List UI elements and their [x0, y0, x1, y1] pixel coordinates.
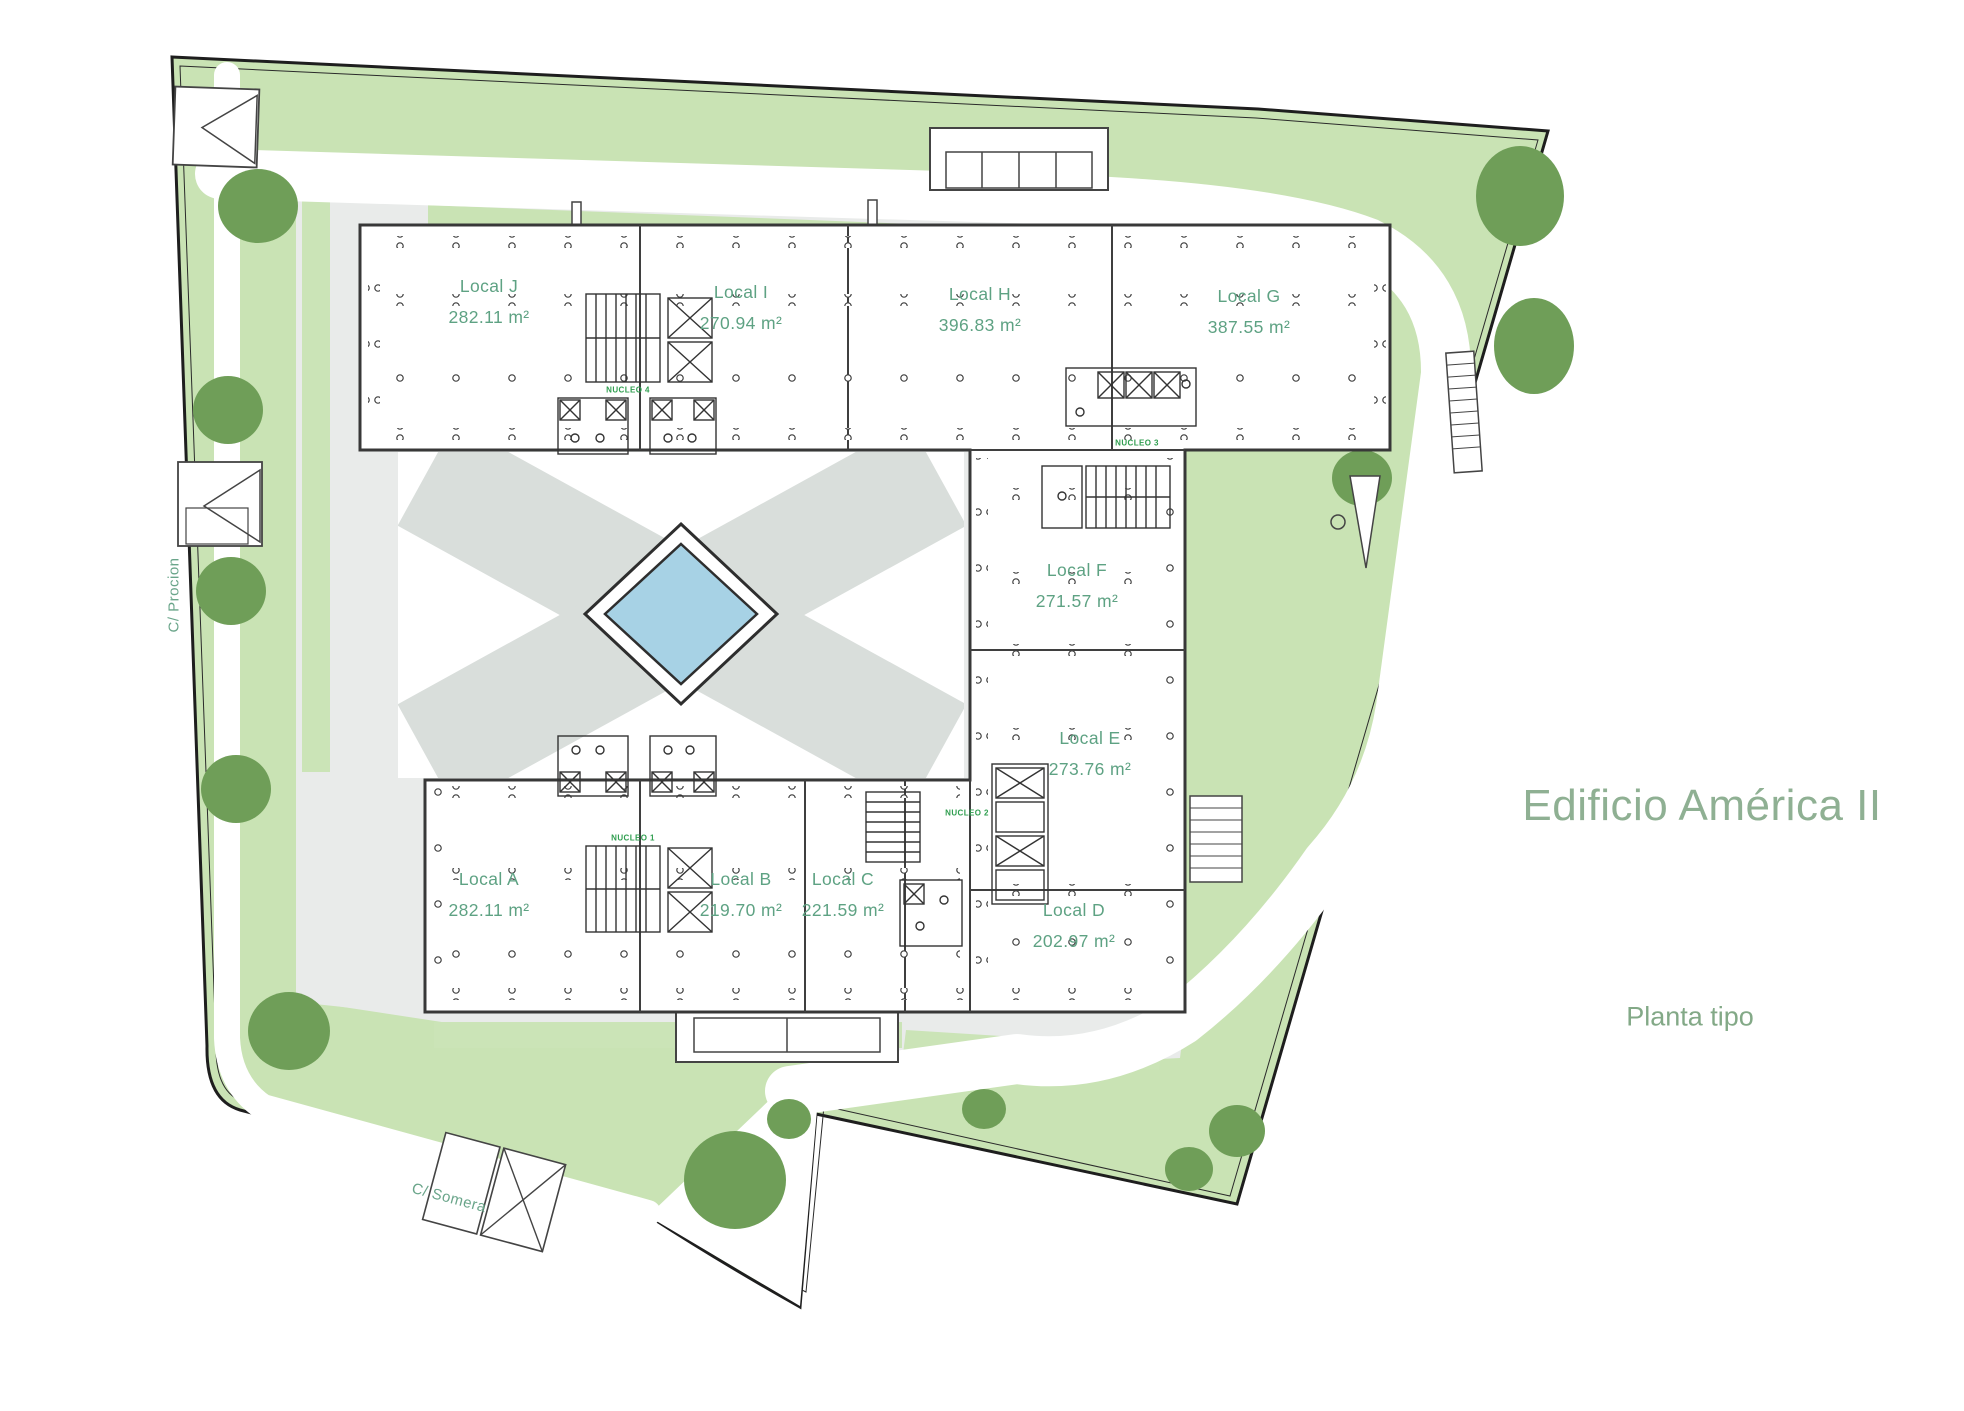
left-entrance-top — [173, 87, 260, 168]
left-entrance-mid — [178, 462, 262, 546]
site-plan-page: Edificio América II Planta tipo C/ Proci… — [0, 0, 1964, 1411]
unit-area: 270.94 m² — [700, 313, 782, 334]
tree — [218, 169, 298, 243]
tree — [196, 557, 266, 625]
core-label-nucleo-4: NUCLEO 4 — [606, 386, 650, 395]
unit-area: 396.83 m² — [939, 315, 1021, 336]
unit-area: 273.76 m² — [1049, 759, 1131, 780]
tree — [201, 755, 271, 823]
unit-name: Local I — [700, 282, 782, 303]
unit-name: Local E — [1049, 728, 1131, 749]
unit-name: Local A — [448, 869, 529, 890]
unit-label-local-c: Local C 221.59 m² — [802, 869, 884, 921]
top-canopy — [930, 128, 1108, 190]
courtyard — [398, 452, 964, 778]
unit-area: 219.70 m² — [700, 900, 782, 921]
tree — [767, 1099, 811, 1139]
tree — [1165, 1147, 1213, 1191]
unit-label-local-j: Local J 282.11 m² — [448, 276, 529, 328]
roof-tick — [868, 200, 877, 227]
tree — [684, 1131, 786, 1229]
unit-label-local-b: Local B 219.70 m² — [700, 869, 782, 921]
unit-area: 271.57 m² — [1036, 591, 1118, 612]
unit-area: 282.11 m² — [448, 307, 529, 328]
tree — [1209, 1105, 1265, 1157]
unit-label-local-i: Local I 270.94 m² — [700, 282, 782, 334]
bottom-canopy — [676, 1006, 898, 1062]
site-plan-drawing — [0, 0, 1964, 1411]
unit-area: 202.97 m² — [1033, 931, 1115, 952]
unit-name: Local J — [448, 276, 529, 297]
unit-name: Local B — [700, 869, 782, 890]
tree — [1476, 146, 1564, 246]
unit-label-local-g: Local G 387.55 m² — [1208, 286, 1290, 338]
unit-name: Local F — [1036, 560, 1118, 581]
plan-subtitle: Planta tipo — [1626, 1002, 1754, 1033]
core-label-nucleo-1: NUCLEO 1 — [611, 834, 655, 843]
unit-name: Local G — [1208, 286, 1290, 307]
tree — [193, 376, 263, 444]
tree — [1494, 298, 1574, 394]
unit-area: 387.55 m² — [1208, 317, 1290, 338]
tree — [248, 992, 330, 1070]
unit-label-local-f: Local F 271.57 m² — [1036, 560, 1118, 612]
unit-area: 221.59 m² — [802, 900, 884, 921]
unit-name: Local H — [939, 284, 1021, 305]
unit-name: Local D — [1033, 900, 1115, 921]
roof-tick — [572, 202, 581, 227]
unit-label-local-h: Local H 396.83 m² — [939, 284, 1021, 336]
east-stairs — [1190, 796, 1242, 882]
unit-label-local-d: Local D 202.97 m² — [1033, 900, 1115, 952]
tree — [962, 1089, 1006, 1129]
unit-name: Local C — [802, 869, 884, 890]
unit-label-local-e: Local E 273.76 m² — [1049, 728, 1131, 780]
page-title: Edificio América II — [1522, 781, 1881, 831]
core-label-nucleo-2: NUCLEO 2 — [945, 809, 989, 818]
street-label-procion: C/ Procion — [166, 557, 183, 632]
core-label-nucleo-3: NUCLEO 3 — [1115, 439, 1159, 448]
unit-label-local-a: Local A 282.11 m² — [448, 869, 529, 921]
unit-area: 282.11 m² — [448, 900, 529, 921]
